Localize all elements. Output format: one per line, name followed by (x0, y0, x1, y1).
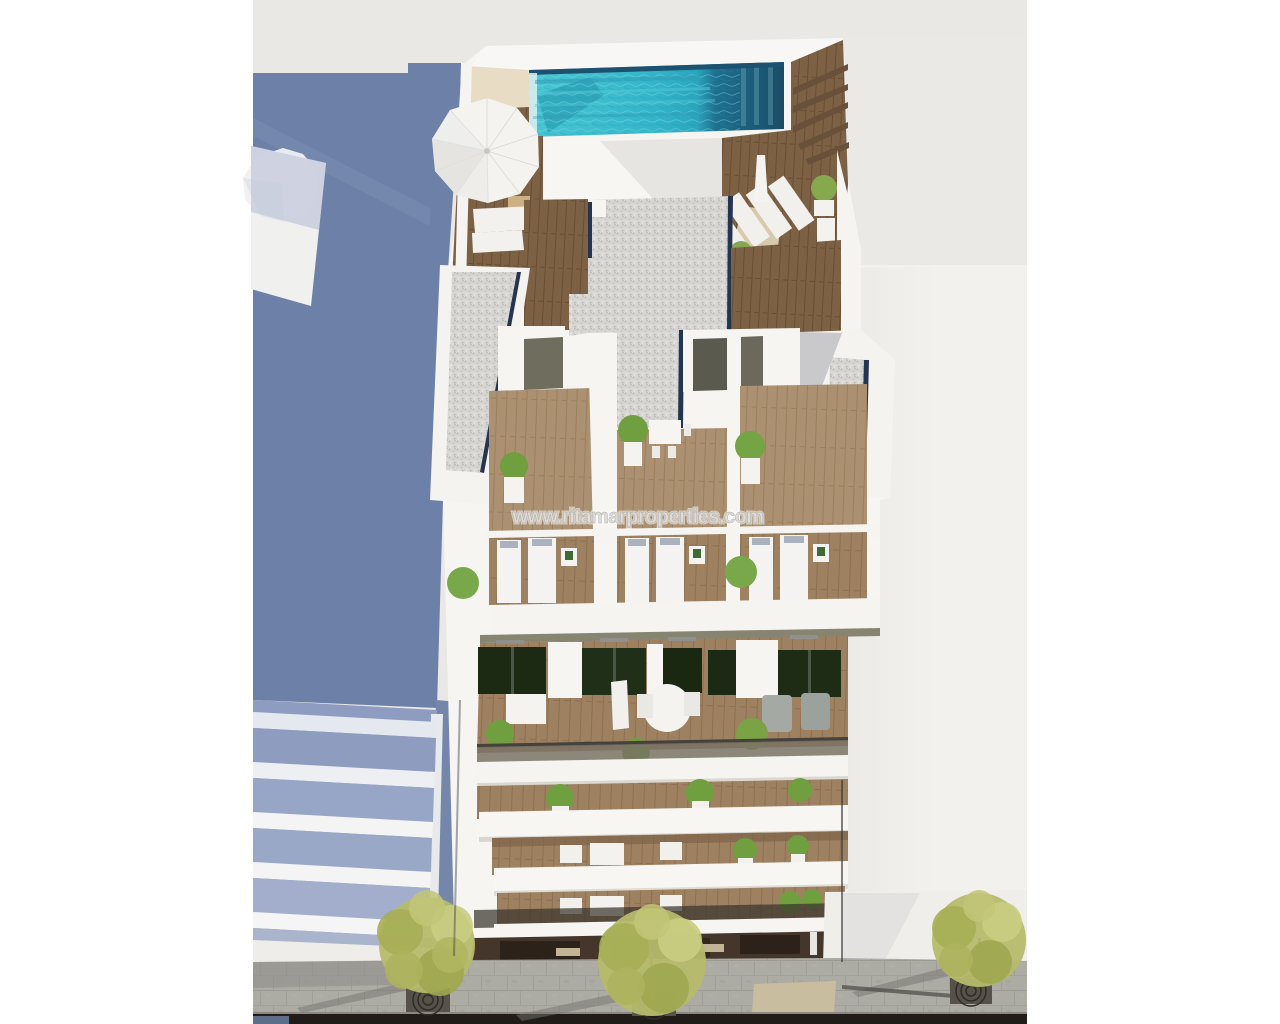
svg-text:www.ritamarproperties.com: www.ritamarproperties.com (511, 506, 763, 528)
